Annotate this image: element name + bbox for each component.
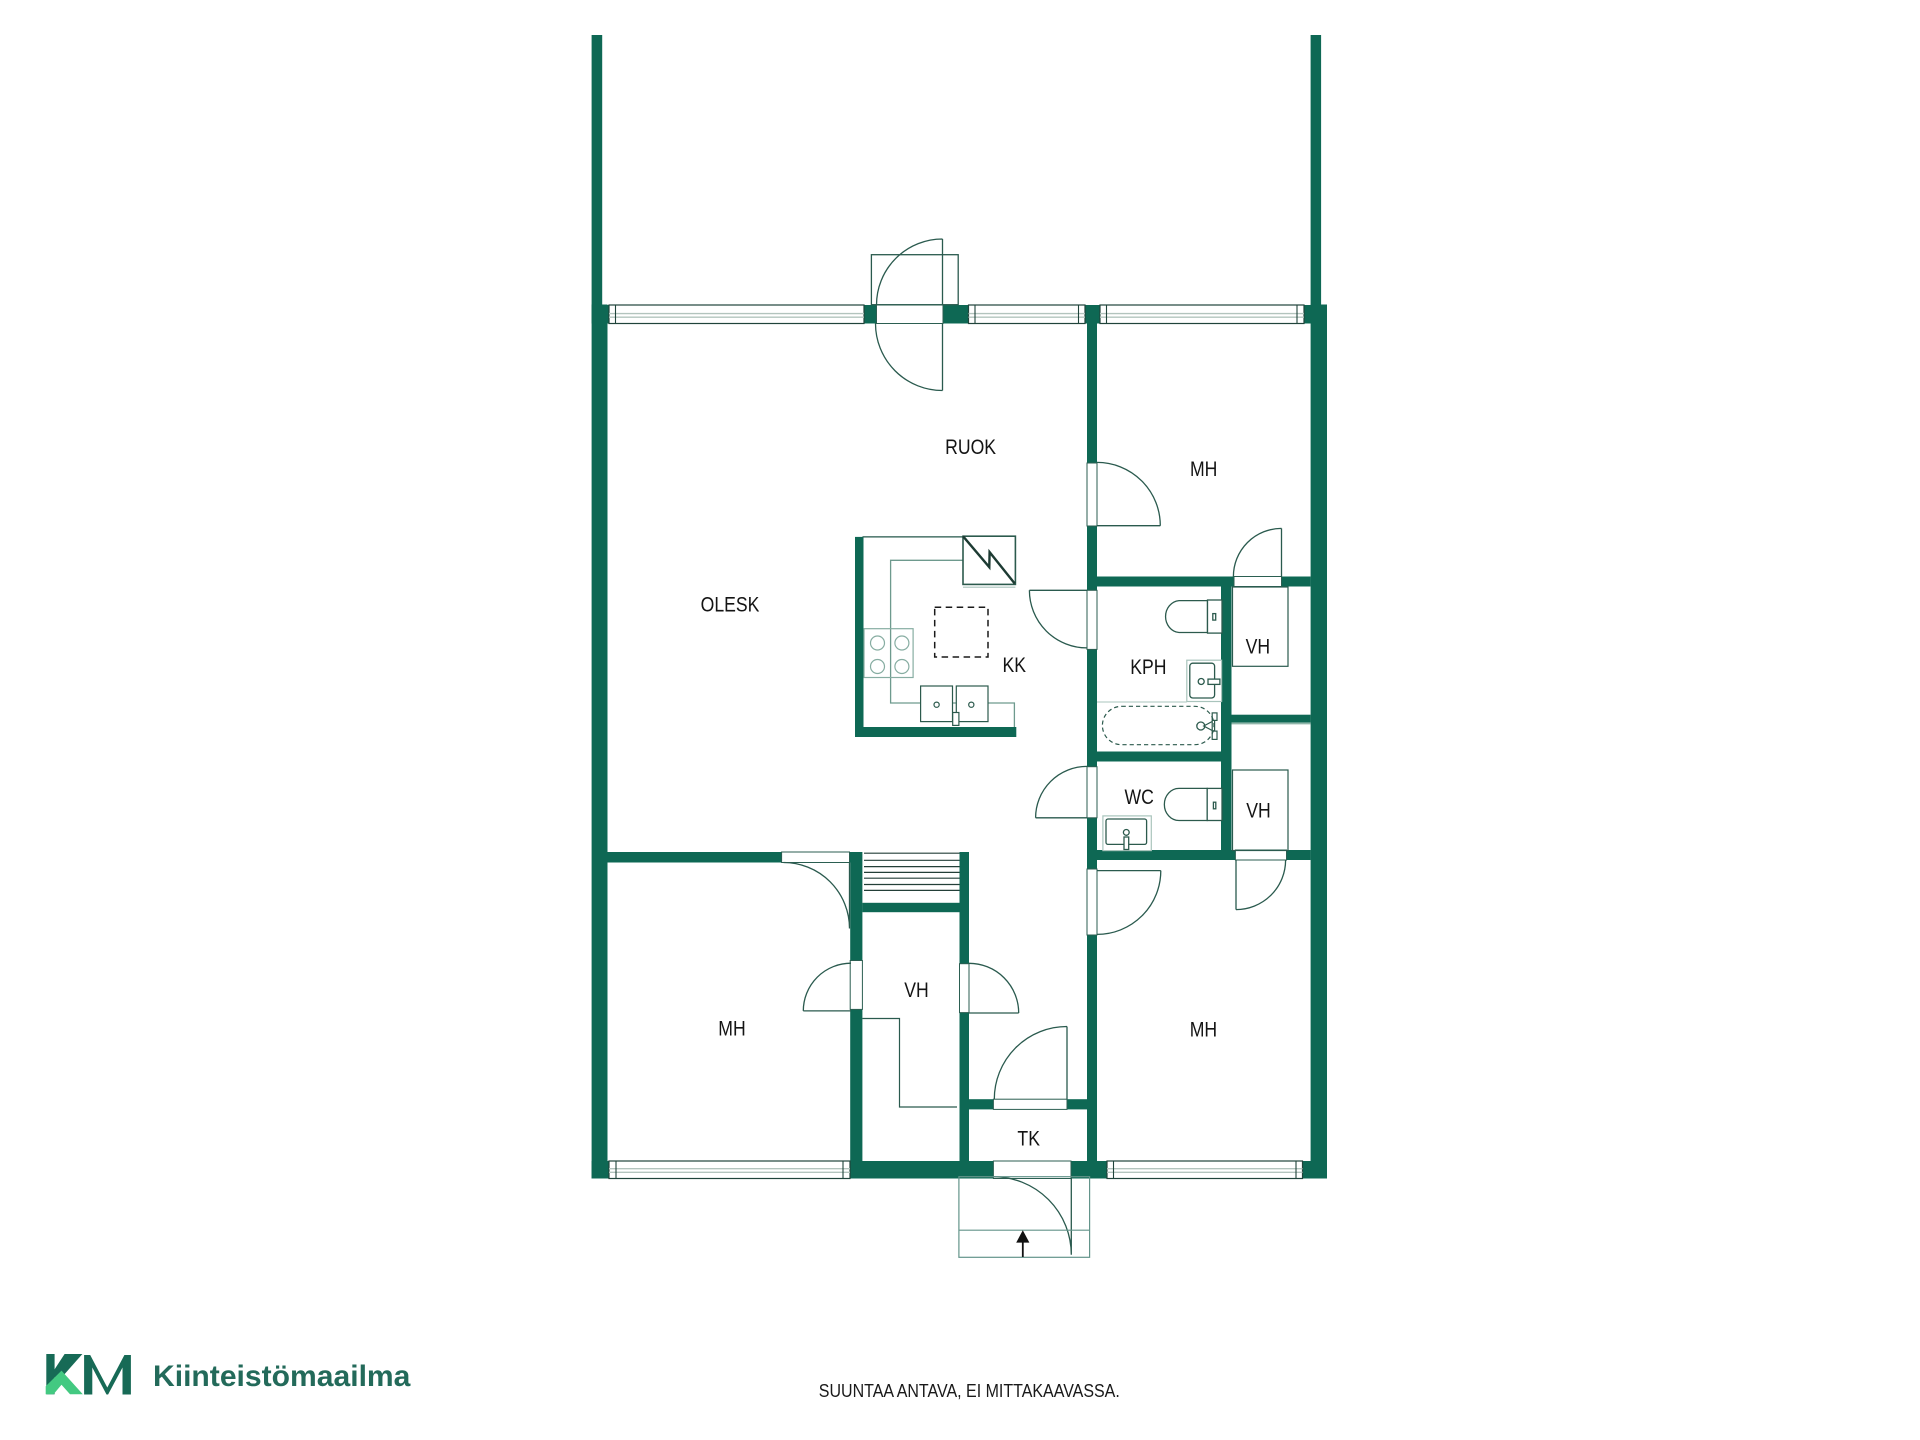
- svg-text:MH: MH: [1190, 457, 1217, 481]
- svg-text:RUOK: RUOK: [945, 435, 996, 459]
- svg-text:MH: MH: [718, 1017, 745, 1041]
- svg-text:VH: VH: [904, 978, 928, 1002]
- svg-text:VH: VH: [1246, 799, 1270, 823]
- svg-text:KK: KK: [1003, 653, 1027, 677]
- svg-text:SUUNTAA ANTAVA, EI MITTAKAAVAS: SUUNTAA ANTAVA, EI MITTAKAAVASSA.: [819, 1381, 1120, 1401]
- svg-text:MH: MH: [1190, 1018, 1217, 1042]
- svg-text:Kiinteistömaailma: Kiinteistömaailma: [153, 1360, 411, 1393]
- svg-text:OLESK: OLESK: [701, 593, 760, 617]
- svg-text:KPH: KPH: [1130, 655, 1166, 679]
- svg-text:VH: VH: [1246, 635, 1270, 659]
- svg-text:TK: TK: [1017, 1127, 1040, 1151]
- svg-text:WC: WC: [1125, 785, 1154, 809]
